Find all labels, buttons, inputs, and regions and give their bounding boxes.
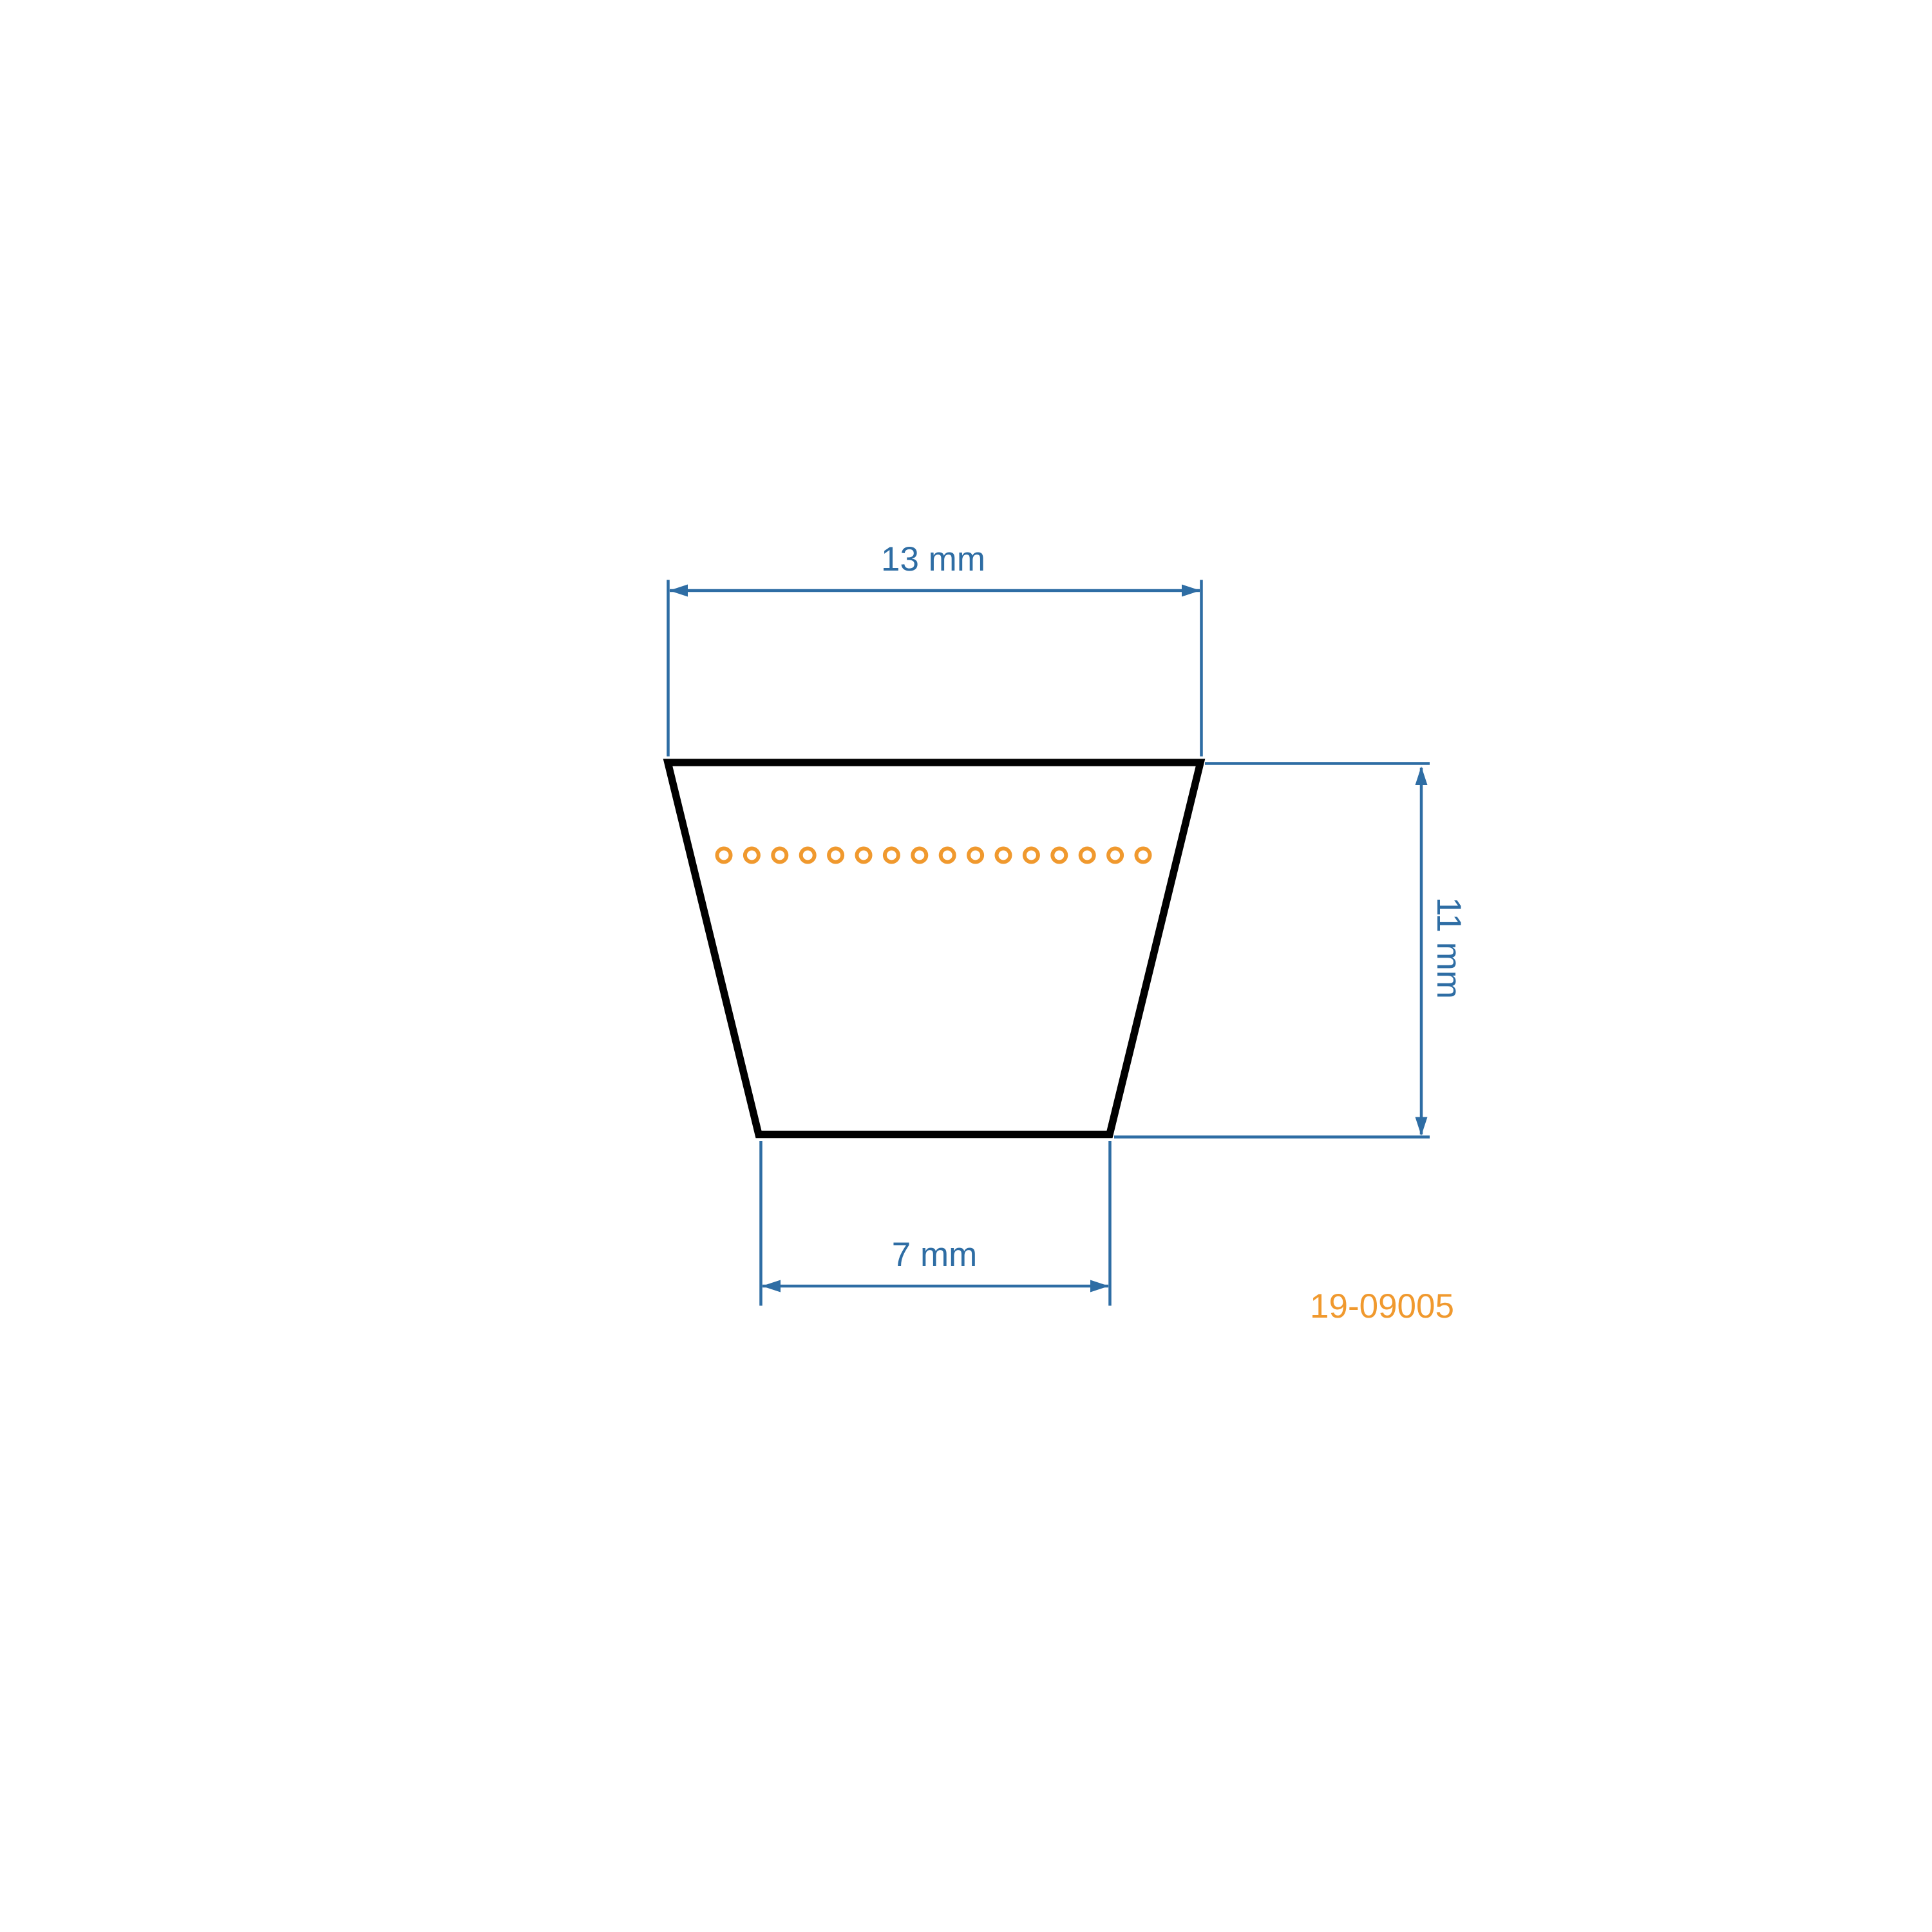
svg-text:11 mm: 11 mm [1430,897,1468,999]
svg-text:19-09005: 19-09005 [1310,1287,1454,1325]
svg-text:7 mm: 7 mm [892,1236,978,1274]
svg-text:13 mm: 13 mm [881,540,985,578]
